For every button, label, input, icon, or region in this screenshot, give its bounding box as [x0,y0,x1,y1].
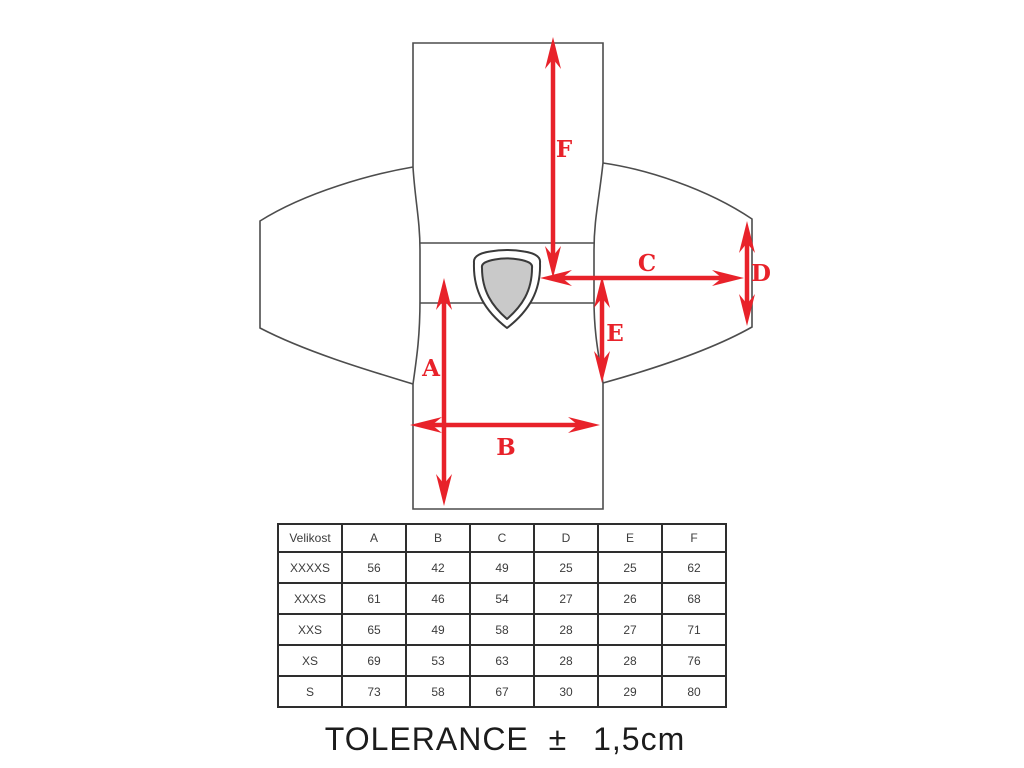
table-row-xxs: XXS 65 49 58 28 27 71 [278,614,726,645]
table-cell: 49 [406,614,470,645]
table-cell: 30 [534,676,598,707]
table-cell: 67 [470,676,534,707]
dimension-label-f: F [556,136,573,163]
size-cell: S [278,676,342,707]
plus-minus-symbol: ± [549,721,568,757]
table-cell: 58 [406,676,470,707]
table-cell: 76 [662,645,726,676]
size-cell: XS [278,645,342,676]
table-cell: 68 [662,583,726,614]
table-cell: 69 [342,645,406,676]
table-header-row: Velikost A B C D E F [278,524,726,552]
dimension-arrow-e: E [594,276,624,383]
column-header-f: F [662,524,726,552]
size-cell: XXXS [278,583,342,614]
column-header-velikost: Velikost [278,524,342,552]
table-cell: 27 [598,614,662,645]
table-cell: 53 [406,645,470,676]
size-cell: XXS [278,614,342,645]
table-row-s: S 73 58 67 30 29 80 [278,676,726,707]
table-cell: 80 [662,676,726,707]
table-cell: 63 [470,645,534,676]
tolerance-note: TOLERANCE ± 1,5cm [0,721,1010,758]
table-cell: 54 [470,583,534,614]
column-header-c: C [470,524,534,552]
table-row-xxxs: XXXS 61 46 54 27 26 68 [278,583,726,614]
table-cell: 25 [534,552,598,583]
size-chart-page: F C D E A [0,0,1024,768]
table-cell: 58 [470,614,534,645]
table-cell: 73 [342,676,406,707]
table-cell: 61 [342,583,406,614]
column-header-e: E [598,524,662,552]
table-cell: 62 [662,552,726,583]
table-cell: 56 [342,552,406,583]
dimension-label-c: C [638,250,656,277]
size-table: Velikost A B C D E F XXXXS 56 42 49 25 2… [277,523,727,708]
table-cell: 42 [406,552,470,583]
column-header-d: D [534,524,598,552]
garment-right-sleeve [603,163,752,383]
table-cell: 49 [470,552,534,583]
tolerance-label: TOLERANCE [325,721,529,757]
table-cell: 71 [662,614,726,645]
dimension-label-e: E [606,320,624,347]
size-table-header: Velikost A B C D E F [278,524,726,552]
table-cell: 65 [342,614,406,645]
table-cell: 27 [534,583,598,614]
table-cell: 28 [534,645,598,676]
column-header-a: A [342,524,406,552]
garment-measurement-diagram: F C D E A [0,0,1024,520]
table-row-xxxxs: XXXXS 56 42 49 25 25 62 [278,552,726,583]
table-cell: 25 [598,552,662,583]
table-row-xs: XS 69 53 63 28 28 76 [278,645,726,676]
table-cell: 28 [534,614,598,645]
table-cell: 28 [598,645,662,676]
table-cell: 46 [406,583,470,614]
dimension-arrow-d: D [739,221,771,326]
dimension-label-d: D [751,260,771,287]
table-cell: 26 [598,583,662,614]
table-cell: 29 [598,676,662,707]
column-header-b: B [406,524,470,552]
dimension-label-a: A [421,355,441,382]
garment-left-sleeve [260,167,413,384]
tolerance-value: 1,5cm [593,721,685,757]
dimension-label-b: B [496,434,515,461]
size-table-body: XXXXS 56 42 49 25 25 62 XXXS 61 46 54 27… [278,552,726,707]
size-cell: XXXXS [278,552,342,583]
